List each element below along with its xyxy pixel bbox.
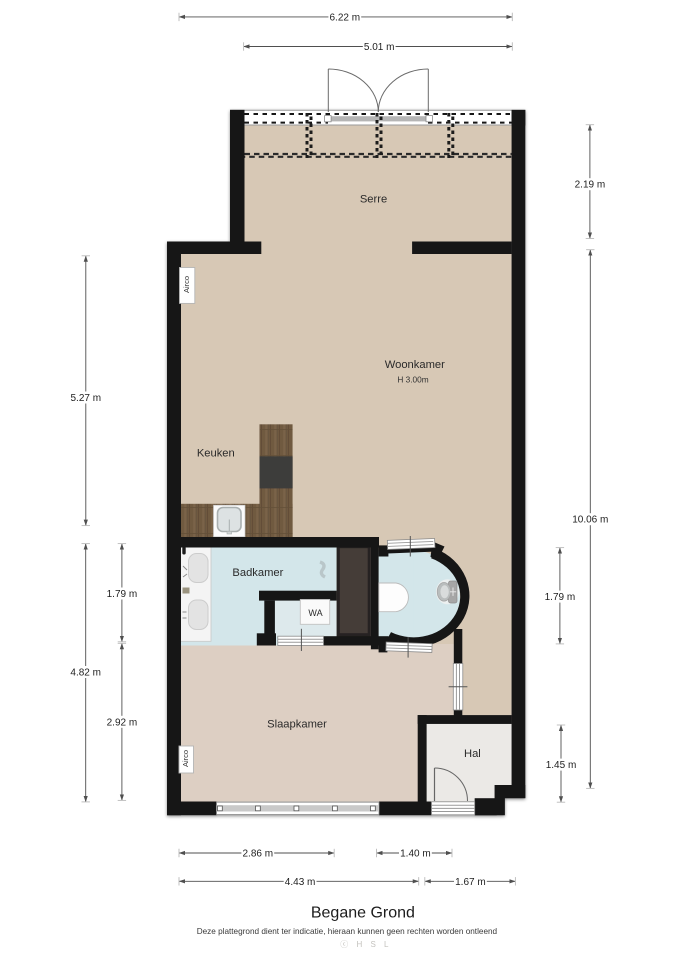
svg-text:Airco: Airco xyxy=(182,276,191,293)
svg-text:Hal: Hal xyxy=(464,748,481,760)
svg-text:1.79 m: 1.79 m xyxy=(107,589,138,600)
svg-text:1.67 m: 1.67 m xyxy=(455,877,486,888)
svg-text:2.19 m: 2.19 m xyxy=(575,180,606,191)
svg-text:2.86 m: 2.86 m xyxy=(243,849,274,860)
svg-text:WA: WA xyxy=(308,608,322,618)
svg-text:Badkamer: Badkamer xyxy=(232,567,283,579)
svg-text:1.79 m: 1.79 m xyxy=(545,592,576,603)
svg-text:1.45 m: 1.45 m xyxy=(546,760,577,771)
svg-text:ⓒ H S L: ⓒ H S L xyxy=(340,940,391,949)
svg-text:2.92 m: 2.92 m xyxy=(107,717,138,728)
svg-text:Keuken: Keuken xyxy=(197,448,235,460)
svg-text:4.43 m: 4.43 m xyxy=(285,877,316,888)
svg-text:10.06 m: 10.06 m xyxy=(572,515,608,526)
svg-text:H 3.00m: H 3.00m xyxy=(397,375,428,385)
svg-text:Deze plattegrond dient ter ind: Deze plattegrond dient ter indicatie, hi… xyxy=(197,927,498,936)
svg-text:6.22 m: 6.22 m xyxy=(330,12,361,23)
svg-text:Airco: Airco xyxy=(181,750,190,767)
svg-text:Serre: Serre xyxy=(360,194,387,206)
svg-text:5.27 m: 5.27 m xyxy=(71,393,102,404)
svg-text:4.82 m: 4.82 m xyxy=(70,668,101,679)
svg-text:Slaapkamer: Slaapkamer xyxy=(267,719,327,731)
svg-text:Begane Grond: Begane Grond xyxy=(311,905,415,922)
svg-text:1.40 m: 1.40 m xyxy=(400,849,431,860)
svg-text:5.01 m: 5.01 m xyxy=(364,42,395,53)
svg-text:Woonkamer: Woonkamer xyxy=(385,359,445,371)
